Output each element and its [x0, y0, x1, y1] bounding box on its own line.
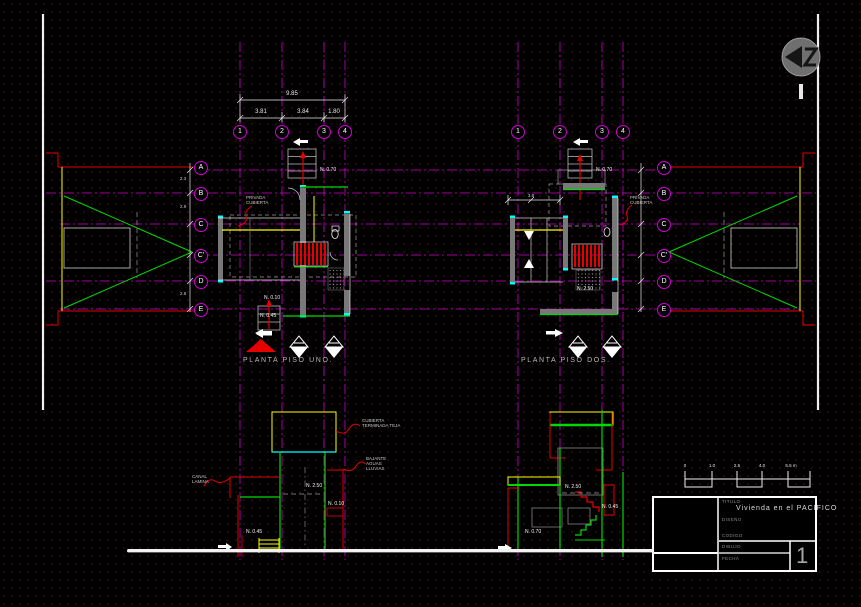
grid-bubble-row-c2-left: C' — [194, 249, 208, 263]
plan-right-entry-level: N. 0.70 — [596, 168, 612, 174]
section-left-level-010: N. 0.10 — [328, 502, 344, 508]
grid-bubble-row-c2-right: C' — [657, 249, 671, 263]
grid-bubble-row-c-left: C — [194, 218, 208, 232]
section-left-downspout-callout: BAJANTE AGUAS LLUVIAS — [366, 456, 386, 472]
grid-bubble-row-e-left: E — [194, 303, 208, 317]
grid-bubble-row-b-right: B — [657, 187, 671, 201]
dim-label-seg2: 3.84 — [297, 109, 309, 116]
titleblock-design-label: DISEÑO — [722, 517, 742, 522]
right-plan-entry-arrow-glyph — [546, 329, 563, 337]
section-left-level-045: N. 0.45 — [246, 530, 262, 536]
titleblock-title-label: TITULO — [722, 499, 740, 504]
dim-label-seg1: 3.81 — [255, 109, 267, 116]
grid-bubble-row-a-left: A — [194, 161, 208, 175]
dim-label-total: 9.85 — [286, 91, 298, 98]
grid-bubble-col-2-left: 2 — [275, 125, 289, 139]
scale-label-3: 4.0 — [759, 463, 765, 468]
grid-bubble-row-b-left: B — [194, 187, 208, 201]
grid-bubble-col-3-left: 3 — [317, 125, 331, 139]
grid-horizontal-lines — [46, 170, 816, 309]
titleblock-drawing-label: DIBUJO — [722, 544, 741, 549]
dim-label-right-top: 3.8 — [528, 193, 534, 198]
cad-canvas[interactable]: 1 2 3 4 1 2 3 4 A B C C' D E A B C C' D … — [0, 0, 861, 607]
scale-label-1: 1.0 — [709, 463, 715, 468]
plan-left-privada-note: PRIVADA CUBIERTA — [246, 195, 268, 205]
section-right-level-045: N. 0.45 — [602, 505, 618, 511]
grid-bubble-col-2-right: 2 — [553, 125, 567, 139]
grid-bubble-row-e-right: E — [657, 303, 671, 317]
left-wing — [46, 153, 196, 325]
titleblock-date-label: FECHA — [722, 556, 739, 561]
scale-label-0: 0 — [684, 463, 687, 468]
plan-right-title: PLANTA PISO DOS. — [521, 357, 611, 365]
titleblock-title-value: Vivienda en el PACIFICO — [736, 505, 837, 513]
dim-label-side1: 2.3 — [180, 176, 186, 181]
grid-bubble-row-d-left: D — [194, 275, 208, 289]
plan-right-linework — [510, 138, 632, 315]
plan-left-level-045: N. 0.45 — [260, 314, 276, 320]
dim-label-side3: 2.8 — [180, 291, 186, 296]
dim-label-side2: 2.9 — [180, 204, 186, 209]
grid-bubble-col-3-right: 3 — [595, 125, 609, 139]
scale-label-2: 2.5 — [734, 463, 740, 468]
edge-lines — [43, 14, 818, 410]
drawing-linework — [0, 0, 861, 607]
section-right-level-070: N. 0.70 — [525, 530, 541, 536]
grid-bubble-col-1-left: 1 — [233, 125, 247, 139]
titleblock-code-label: CODIGO — [722, 533, 743, 538]
grid-bubble-row-a-right: A — [657, 161, 671, 175]
section-right-level-250: N. 2.50 — [565, 485, 581, 491]
scale-bar — [685, 471, 810, 487]
plan-right-level-250: N. 2.50 — [577, 287, 593, 293]
plan-left-entry-level: N. 0.70 — [320, 168, 336, 174]
grid-bubble-row-d-right: D — [657, 275, 671, 289]
grid-bubble-col-4-right: 4 — [616, 125, 630, 139]
section-left-gutter-callout: CANAL LAMINA — [192, 474, 209, 484]
section-right-linework — [498, 410, 623, 557]
section-left-roof-callout: CUBIERTA TERMINADA TEJA — [362, 418, 400, 428]
section-left-level-250: N. 2.50 — [306, 484, 322, 490]
plan-left-level-010: N. 0.10 — [264, 296, 280, 302]
grid-bubble-row-c-right: C — [657, 218, 671, 232]
dim-label-seg3: 1.80 — [328, 109, 340, 116]
plan-right-privada-note: PRIVADA CUBIERTA — [630, 195, 652, 205]
right-wing — [666, 153, 815, 325]
north-compass-icon — [782, 38, 820, 99]
north-triangle-symbol — [246, 330, 276, 352]
grid-bubble-col-1-right: 1 — [511, 125, 525, 139]
ground-line — [127, 549, 659, 552]
titleblock-sheet-number: 1 — [796, 543, 808, 569]
section-left-linework — [204, 412, 365, 557]
grid-bubble-col-4-left: 4 — [338, 125, 352, 139]
scale-label-4: 5.5 m — [785, 463, 796, 468]
grid-vertical-lines — [240, 42, 623, 560]
plan-left-title: PLANTA PISO UNO. — [243, 357, 333, 365]
section-marker-diamonds — [290, 336, 621, 358]
